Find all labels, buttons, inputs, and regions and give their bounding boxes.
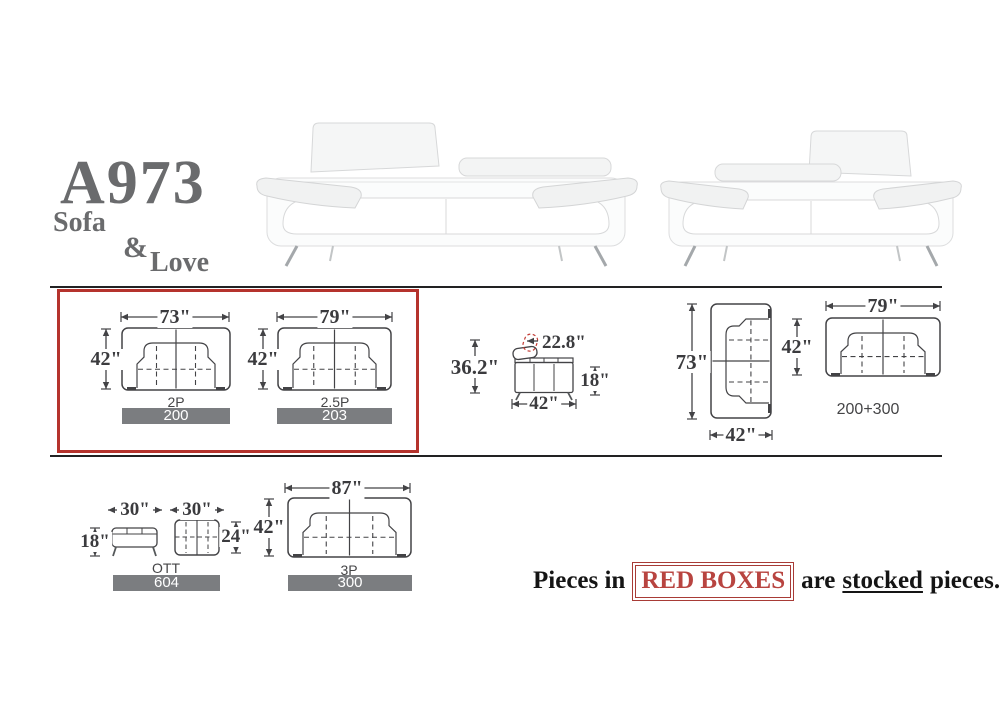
note-suffix: pieces. [930, 566, 1000, 596]
dim-2-5p-depth: 42" [245, 349, 280, 370]
dim-2p-width: 73" [157, 307, 192, 328]
diagram-side-view: 36.2" 22.8" 18" 42" [450, 325, 625, 420]
title-ampersand: & [123, 233, 148, 263]
note-prefix: Pieces in [533, 566, 625, 596]
dim-side-seat-height: 18" [578, 371, 612, 391]
title-word-love: Love [150, 249, 209, 277]
code-bar-2p: 200 [122, 408, 230, 424]
divider-top [50, 286, 942, 288]
dim-side-depth: 42" [527, 394, 561, 414]
dim-3p-width: 87" [329, 478, 364, 499]
code-bar-3p: 300 [288, 575, 412, 591]
dim-3p-depth: 42" [251, 517, 286, 538]
diagram-loveseat-top: 79" 42" 200+300 [775, 290, 955, 425]
loveseat-photo [657, 128, 965, 270]
dim-ott-side-width: 30" [118, 500, 152, 520]
note-red-boxes: RED BOXES [632, 562, 794, 601]
note-stocked: stocked [842, 566, 923, 596]
dim-ott-top-width: 30" [180, 500, 214, 520]
code-bar-ott: 604 [113, 575, 220, 591]
title-word-sofa: Sofa [53, 209, 106, 237]
dim-ott-height: 18" [78, 532, 112, 552]
dim-loveseat-width: 79" [865, 296, 900, 317]
diagram-2p: 73" 42" 2P 200 [75, 300, 235, 435]
spec-sheet-page: A973 Sofa & Love 73" 42" 2P [0, 0, 1000, 701]
dim-rotated-length: 73" [674, 351, 711, 373]
dim-side-total-height: 36.2" [449, 356, 501, 378]
divider-bottom [50, 455, 942, 457]
dim-loveseat-depth: 42" [779, 337, 814, 358]
model-number: A973 [60, 152, 206, 214]
diagram-3p: 87" 42" 3P 300 [245, 475, 460, 595]
diagram-2-5p: 79" 42" 2.5P 203 [230, 300, 405, 435]
label-ott: OTT [152, 561, 180, 575]
diagram-ottoman: 30" 18" 30" 24" OTT 604 [80, 495, 260, 595]
label-combo: 200+300 [837, 402, 900, 418]
dim-2p-depth: 42" [88, 349, 123, 370]
dim-2-5p-width: 79" [317, 307, 352, 328]
note-mid: are [801, 566, 835, 596]
sofa-photo [253, 120, 641, 270]
dim-side-headrest: 22.8" [540, 333, 588, 353]
dim-rotated-depth: 42" [723, 425, 758, 446]
code-bar-2-5p: 203 [277, 408, 392, 424]
stock-note: Pieces in RED BOXES are stocked pieces. [533, 562, 1000, 601]
